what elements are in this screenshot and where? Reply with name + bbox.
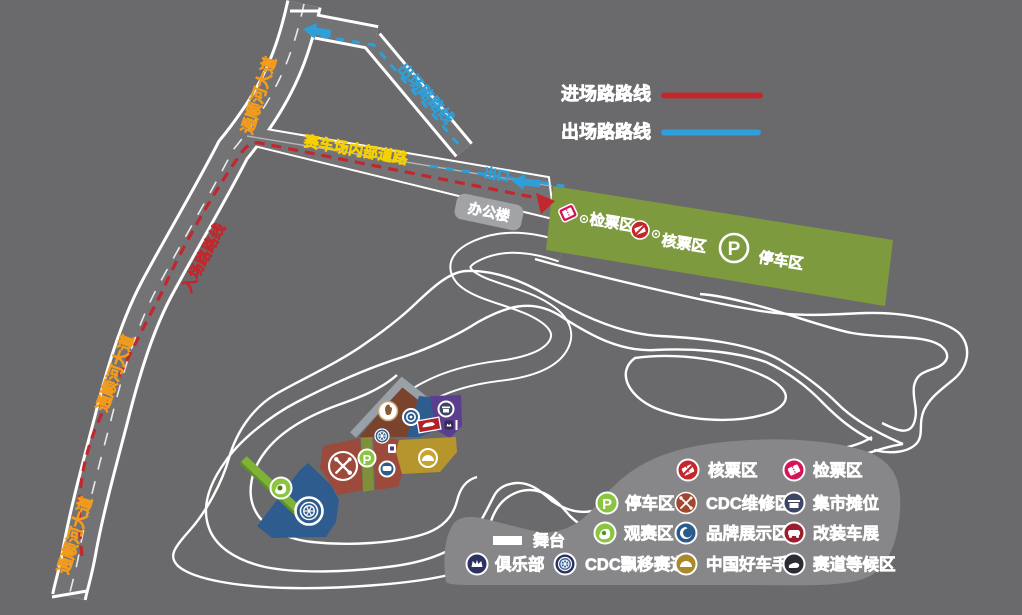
svg-text:P: P [728,239,741,260]
svg-text:赛道等候区: 赛道等候区 [812,554,896,574]
svg-text:集市摊位: 集市摊位 [812,493,880,513]
svg-text:核票区: 核票区 [708,460,758,480]
svg-text:CDC飘移赛道: CDC飘移赛道 [585,554,687,574]
svg-text:P: P [363,452,372,467]
svg-text:停车区: 停车区 [625,493,675,513]
svg-text:出场路路线: 出场路路线 [561,121,651,142]
svg-text:品牌展示区: 品牌展示区 [706,523,789,543]
svg-text:CDC维修区: CDC维修区 [706,493,792,513]
svg-text:中国好车手: 中国好车手 [706,554,789,574]
svg-text:P: P [602,496,612,513]
svg-text:进场路路线: 进场路路线 [561,83,651,104]
svg-text:观赛区: 观赛区 [624,523,674,543]
svg-text:改装车展: 改装车展 [813,523,880,543]
svg-text:检票区: 检票区 [813,460,863,480]
svg-text:俱乐部: 俱乐部 [494,554,545,574]
svg-text:舞台: 舞台 [533,531,565,550]
